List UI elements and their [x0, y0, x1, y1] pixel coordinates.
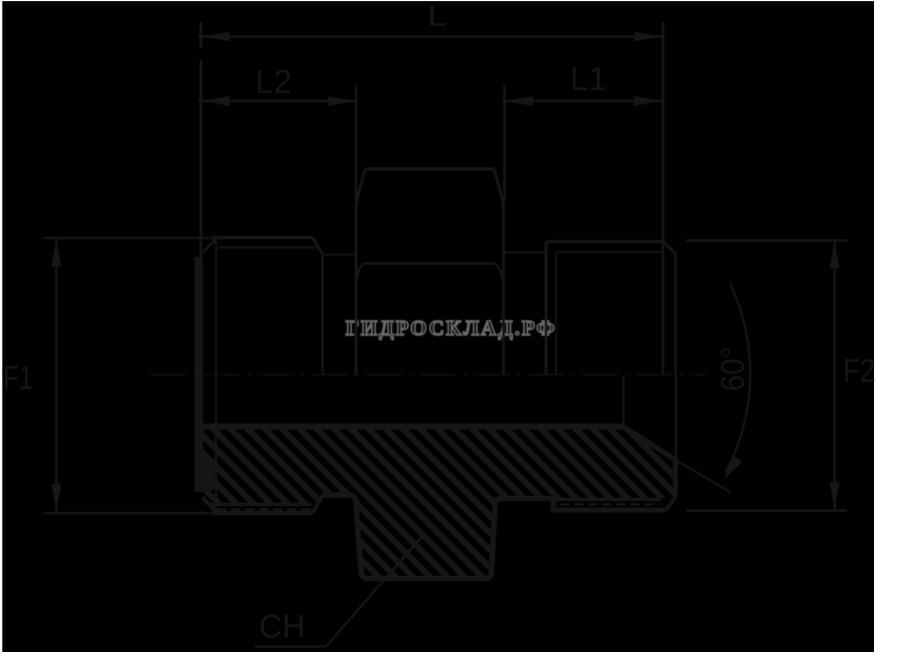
svg-text:ГИДРОСКЛАД.РФ: ГИДРОСКЛАД.РФ	[346, 316, 557, 340]
svg-text:L1: L1	[570, 60, 607, 97]
svg-text:F2: F2	[843, 353, 875, 390]
svg-text:60°: 60°	[714, 347, 751, 391]
svg-text:F1: F1	[3, 360, 33, 397]
svg-text:L: L	[427, 0, 447, 32]
svg-text:CH: CH	[259, 608, 305, 645]
svg-text:L2: L2	[255, 63, 292, 100]
